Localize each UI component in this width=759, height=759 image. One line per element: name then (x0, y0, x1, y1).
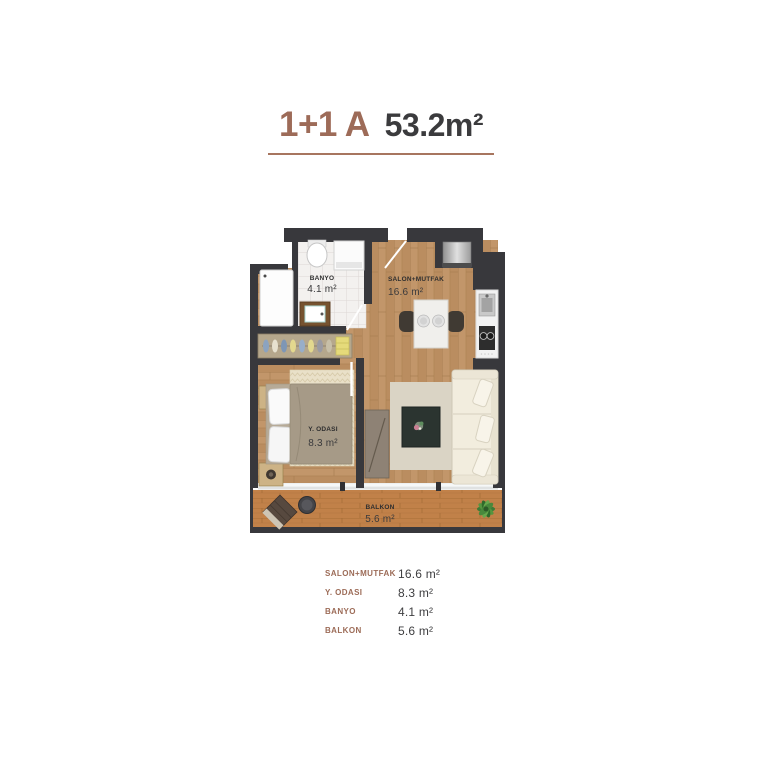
sink-vanity-icon (300, 302, 330, 326)
unit-total-area: 53.2m² (385, 107, 483, 143)
banyo-area: 4.1 m² (307, 284, 337, 295)
y-odasi-label: Y. ODASI (308, 426, 337, 433)
banyo-label: BANYO (310, 275, 334, 282)
entry-hall (260, 270, 293, 326)
closet-wardrobe (258, 334, 352, 358)
balkon-label: BALKON (365, 504, 394, 511)
toilet-icon (307, 243, 327, 267)
title-divider (268, 153, 494, 155)
plan-header: 1+1 A53.2m² (268, 105, 494, 155)
y-odasi-area: 8.3 m² (308, 438, 338, 449)
nightstand-icon (259, 463, 283, 486)
legend-label: Y. ODASI (325, 588, 398, 597)
legend-row: Y. ODASI 8.3 m² (325, 583, 440, 602)
legend-label: BANYO (325, 607, 398, 616)
unit-type-title: 1+1 A (279, 105, 370, 144)
fridge-icon (443, 242, 471, 267)
kitchen-sink-icon (479, 294, 495, 316)
legend-value: 5.6 m² (398, 624, 433, 638)
legend-label: BALKON (325, 626, 398, 635)
tv-unit-icon (365, 410, 389, 478)
legend-row: SALON+MUTFAK 16.6 m² (325, 564, 440, 583)
salon-mutfak-area: 16.6 m² (388, 287, 424, 298)
floor-plan: BANYO 4.1 m² SALON+MUTFAK 16.6 m² Y. ODA… (250, 228, 505, 533)
balkon-area: 5.6 m² (365, 514, 395, 525)
coffee-table-icon (402, 407, 440, 447)
legend-value: 16.6 m² (398, 567, 440, 581)
dining-chair-icon (399, 311, 416, 332)
legend-row: BANYO 4.1 m² (325, 602, 440, 621)
bed-icon (266, 384, 352, 464)
area-legend: SALON+MUTFAK 16.6 m² Y. ODASI 8.3 m² BAN… (325, 564, 440, 640)
legend-label: SALON+MUTFAK (325, 569, 398, 578)
sofa-icon (452, 370, 498, 484)
hall-cabinet-icon (260, 270, 293, 326)
legend-value: 4.1 m² (398, 605, 433, 619)
floor-plan-svg: BANYO 4.1 m² SALON+MUTFAK 16.6 m² Y. ODA… (250, 228, 505, 533)
side-table-icon (299, 497, 316, 514)
washer-icon (334, 241, 364, 270)
salon-mutfak-label: SALON+MUTFAK (388, 276, 444, 283)
legend-row: BALKON 5.6 m² (325, 621, 440, 640)
towel-stack-icon (336, 337, 349, 355)
legend-value: 8.3 m² (398, 586, 433, 600)
dining-chair-icon (447, 311, 464, 332)
brochure-page: 1+1 A53.2m² (0, 0, 759, 759)
